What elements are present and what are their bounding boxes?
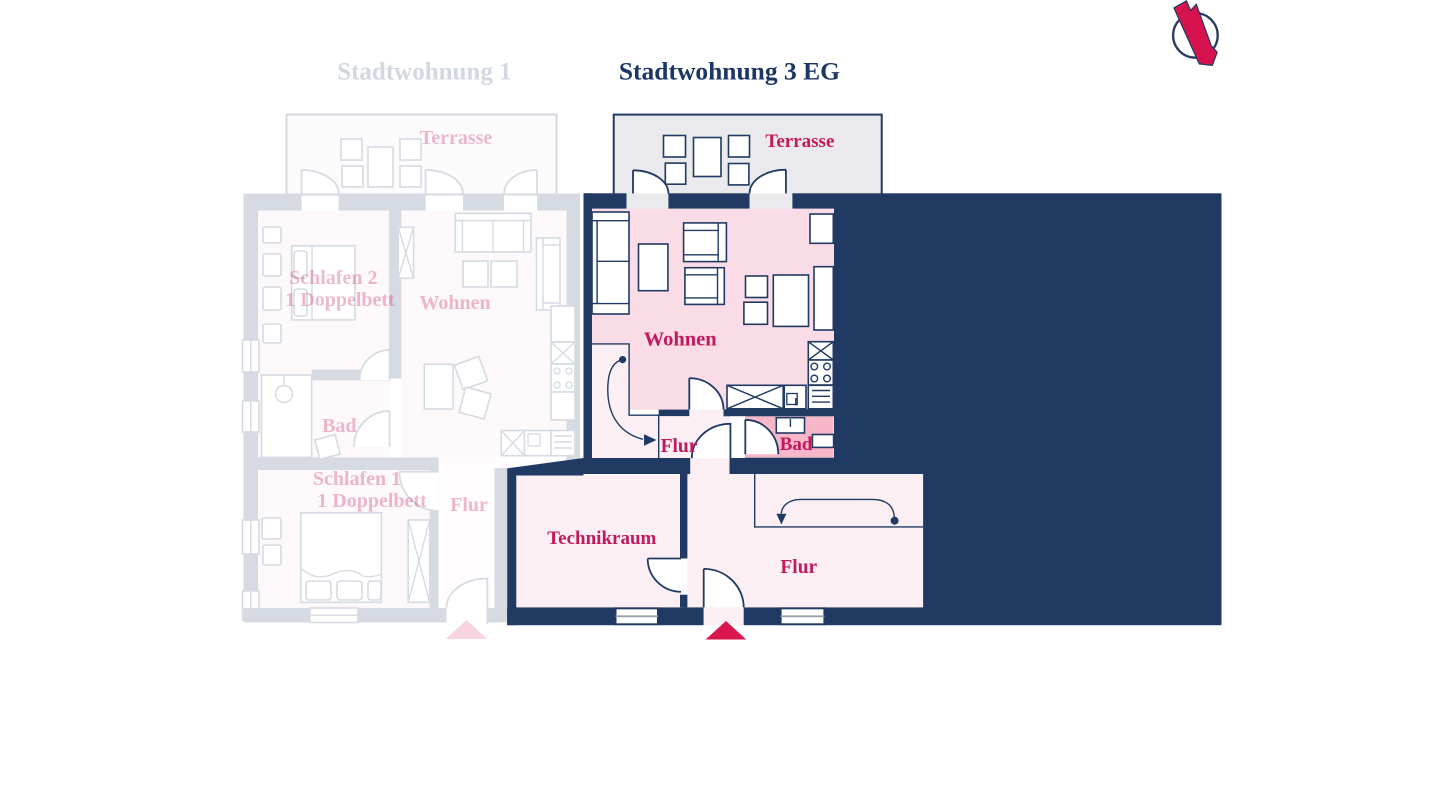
svg-text:Schlafen 1: Schlafen 1: [313, 468, 401, 490]
svg-text:1 Doppelbett: 1 Doppelbett: [285, 289, 395, 311]
svg-text:Schlafen 2: Schlafen 2: [289, 267, 377, 289]
svg-text:1 Doppelbett: 1 Doppelbett: [317, 490, 427, 512]
svg-text:Stadtwohnung 1: Stadtwohnung 1: [337, 59, 511, 86]
svg-text:Stadtwohnung 3 EG: Stadtwohnung 3 EG: [619, 57, 840, 86]
svg-text:Technikraum: Technikraum: [547, 528, 656, 549]
svg-text:Terrasse: Terrasse: [420, 127, 493, 149]
svg-text:Bad: Bad: [322, 415, 356, 437]
svg-text:Bad: Bad: [780, 434, 813, 455]
svg-text:Wohnen: Wohnen: [419, 292, 490, 314]
svg-text:Flur: Flur: [661, 436, 698, 457]
svg-text:Flur: Flur: [450, 494, 488, 516]
svg-text:Terrasse: Terrasse: [765, 131, 834, 152]
svg-text:Flur: Flur: [780, 557, 817, 578]
svg-text:Wohnen: Wohnen: [644, 328, 718, 350]
